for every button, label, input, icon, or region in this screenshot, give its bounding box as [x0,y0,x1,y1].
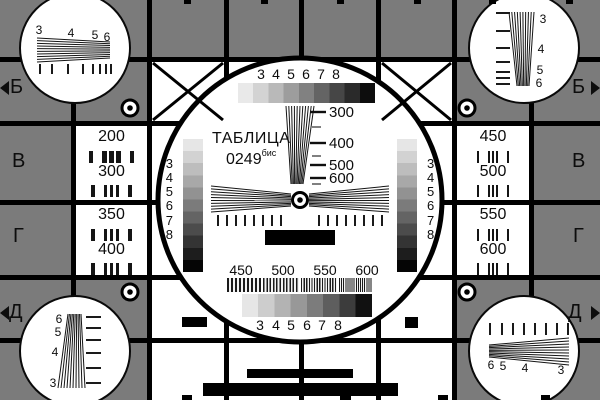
right-step-label: 6 [427,199,439,212]
row-marker: Г [13,226,24,246]
cut-digit-fragment [337,0,344,4]
center-black-bar [265,230,335,245]
right-step-label: 4 [427,171,439,184]
burst-grating-500 [263,278,299,292]
card-number-suffix: бис [262,148,277,158]
cut-digit-fragment [184,0,191,4]
bullseye [459,284,475,300]
bottom-step-label: 8 [332,318,344,332]
line-group-200 [76,150,147,163]
top-step-label: 8 [330,67,342,81]
right-cell-value: 550 [457,207,529,223]
bottom-step-label: 7 [316,318,328,332]
cut-digit-fragment [541,395,550,400]
burst-label-450: 450 [227,263,255,277]
burst-label-600: 600 [353,263,381,277]
right-cell-value: 450 [457,129,529,145]
right-cell-value: 500 [457,164,529,180]
top-step-label: 4 [270,67,282,81]
bottom-bar-upper [247,369,353,378]
card-title: ТАБЛИЦА [212,131,288,147]
corner-circle-bottom-left [20,296,130,400]
top-step-label: 3 [255,67,267,81]
burst-grating-450 [227,278,261,292]
row-marker: В [12,151,25,171]
corner-label: 6 [54,313,64,325]
top-step-label: 5 [285,67,297,81]
left-step-label: 6 [161,199,173,212]
card-number: 0249бис [226,149,276,168]
corner-label: 4 [66,27,76,39]
wedge-scale-400: 400 [329,136,354,151]
left-cell-value: 400 [76,242,147,258]
cut-digit-fragment [566,0,573,4]
line-group-550 [457,228,529,241]
corner-label: 6 [534,77,544,89]
corner-label: 4 [536,43,546,55]
bottom-step-label: 5 [285,318,297,332]
right-black-square [405,317,418,328]
corner-label: 3 [48,377,58,389]
left-step-label: 7 [161,214,173,227]
bottom-step-label: 3 [254,318,266,332]
corner-label: 6 [486,359,496,371]
grayscale-staircase-right [397,139,417,272]
left-black-square [182,317,207,327]
left-cell-value: 350 [76,207,147,223]
row-marker: Д [568,302,582,322]
bottom-step-label: 4 [270,318,282,332]
corner-label: 4 [50,346,60,358]
line-group-600 [457,262,529,275]
cut-digit-fragment [340,395,351,400]
bottom-bar-lower [203,383,398,396]
corner-label: 5 [53,326,63,338]
cut-digit-fragment [261,0,268,4]
cut-digit-fragment [438,395,448,400]
tv-test-card: ТАБЛИЦА 0249бис 300 400 500 600 3 4 5 6 … [0,0,600,400]
cut-digit-fragment [414,0,421,4]
left-step-label: 3 [161,157,173,170]
top-step-label: 7 [315,67,327,81]
top-step-label: 6 [300,67,312,81]
burst-label-550: 550 [311,263,339,277]
bullseye [459,100,475,116]
corner-label: 3 [556,364,566,376]
burst-grating-600 [339,278,372,292]
line-group-400 [76,262,147,275]
corner-label: 5 [535,64,545,76]
grayscale-staircase-top [238,83,375,103]
line-group-300 [76,184,147,197]
left-step-label: 5 [161,185,173,198]
left-step-label: 4 [161,171,173,184]
right-step-label: 3 [427,157,439,170]
arrow-left-icon [0,81,9,95]
corner-circle-top-right [469,0,579,103]
corner-label: 6 [102,31,112,43]
burst-grating-550 [301,278,337,292]
left-cell-value: 200 [76,129,147,145]
arrow-right-icon [591,81,600,95]
bullseye [122,100,138,116]
wedge-scale-600: 600 [329,171,354,186]
corner-label: 4 [520,362,530,374]
wedge-scale-300: 300 [329,105,354,120]
cut-digit-fragment [182,395,192,400]
bullseye [122,284,138,300]
arrow-right-icon [591,306,600,320]
grayscale-staircase-left [183,139,203,272]
arrow-left-icon [0,306,9,320]
line-group-350 [76,228,147,241]
line-group-450 [457,150,529,163]
bottom-step-label: 6 [301,318,313,332]
right-step-label: 8 [427,228,439,241]
left-cell-value: 300 [76,164,147,180]
corner-label: 5 [498,360,508,372]
center-bullseye [293,193,308,208]
vector-overlay [0,0,600,400]
row-marker: В [572,151,585,171]
line-group-500 [457,184,529,197]
grayscale-staircase-bottom [242,294,372,317]
right-step-label: 7 [427,214,439,227]
row-marker: Г [573,226,584,246]
left-step-label: 8 [161,228,173,241]
corner-label: 5 [90,29,100,41]
right-cell-value: 600 [457,242,529,258]
row-marker: Д [9,302,23,322]
right-step-label: 5 [427,185,439,198]
corner-label: 3 [538,13,548,25]
burst-label-500: 500 [269,263,297,277]
row-marker: Б [572,77,585,97]
cut-digit-fragment [489,0,496,4]
row-marker: Б [10,77,23,97]
corner-label: 3 [34,24,44,36]
